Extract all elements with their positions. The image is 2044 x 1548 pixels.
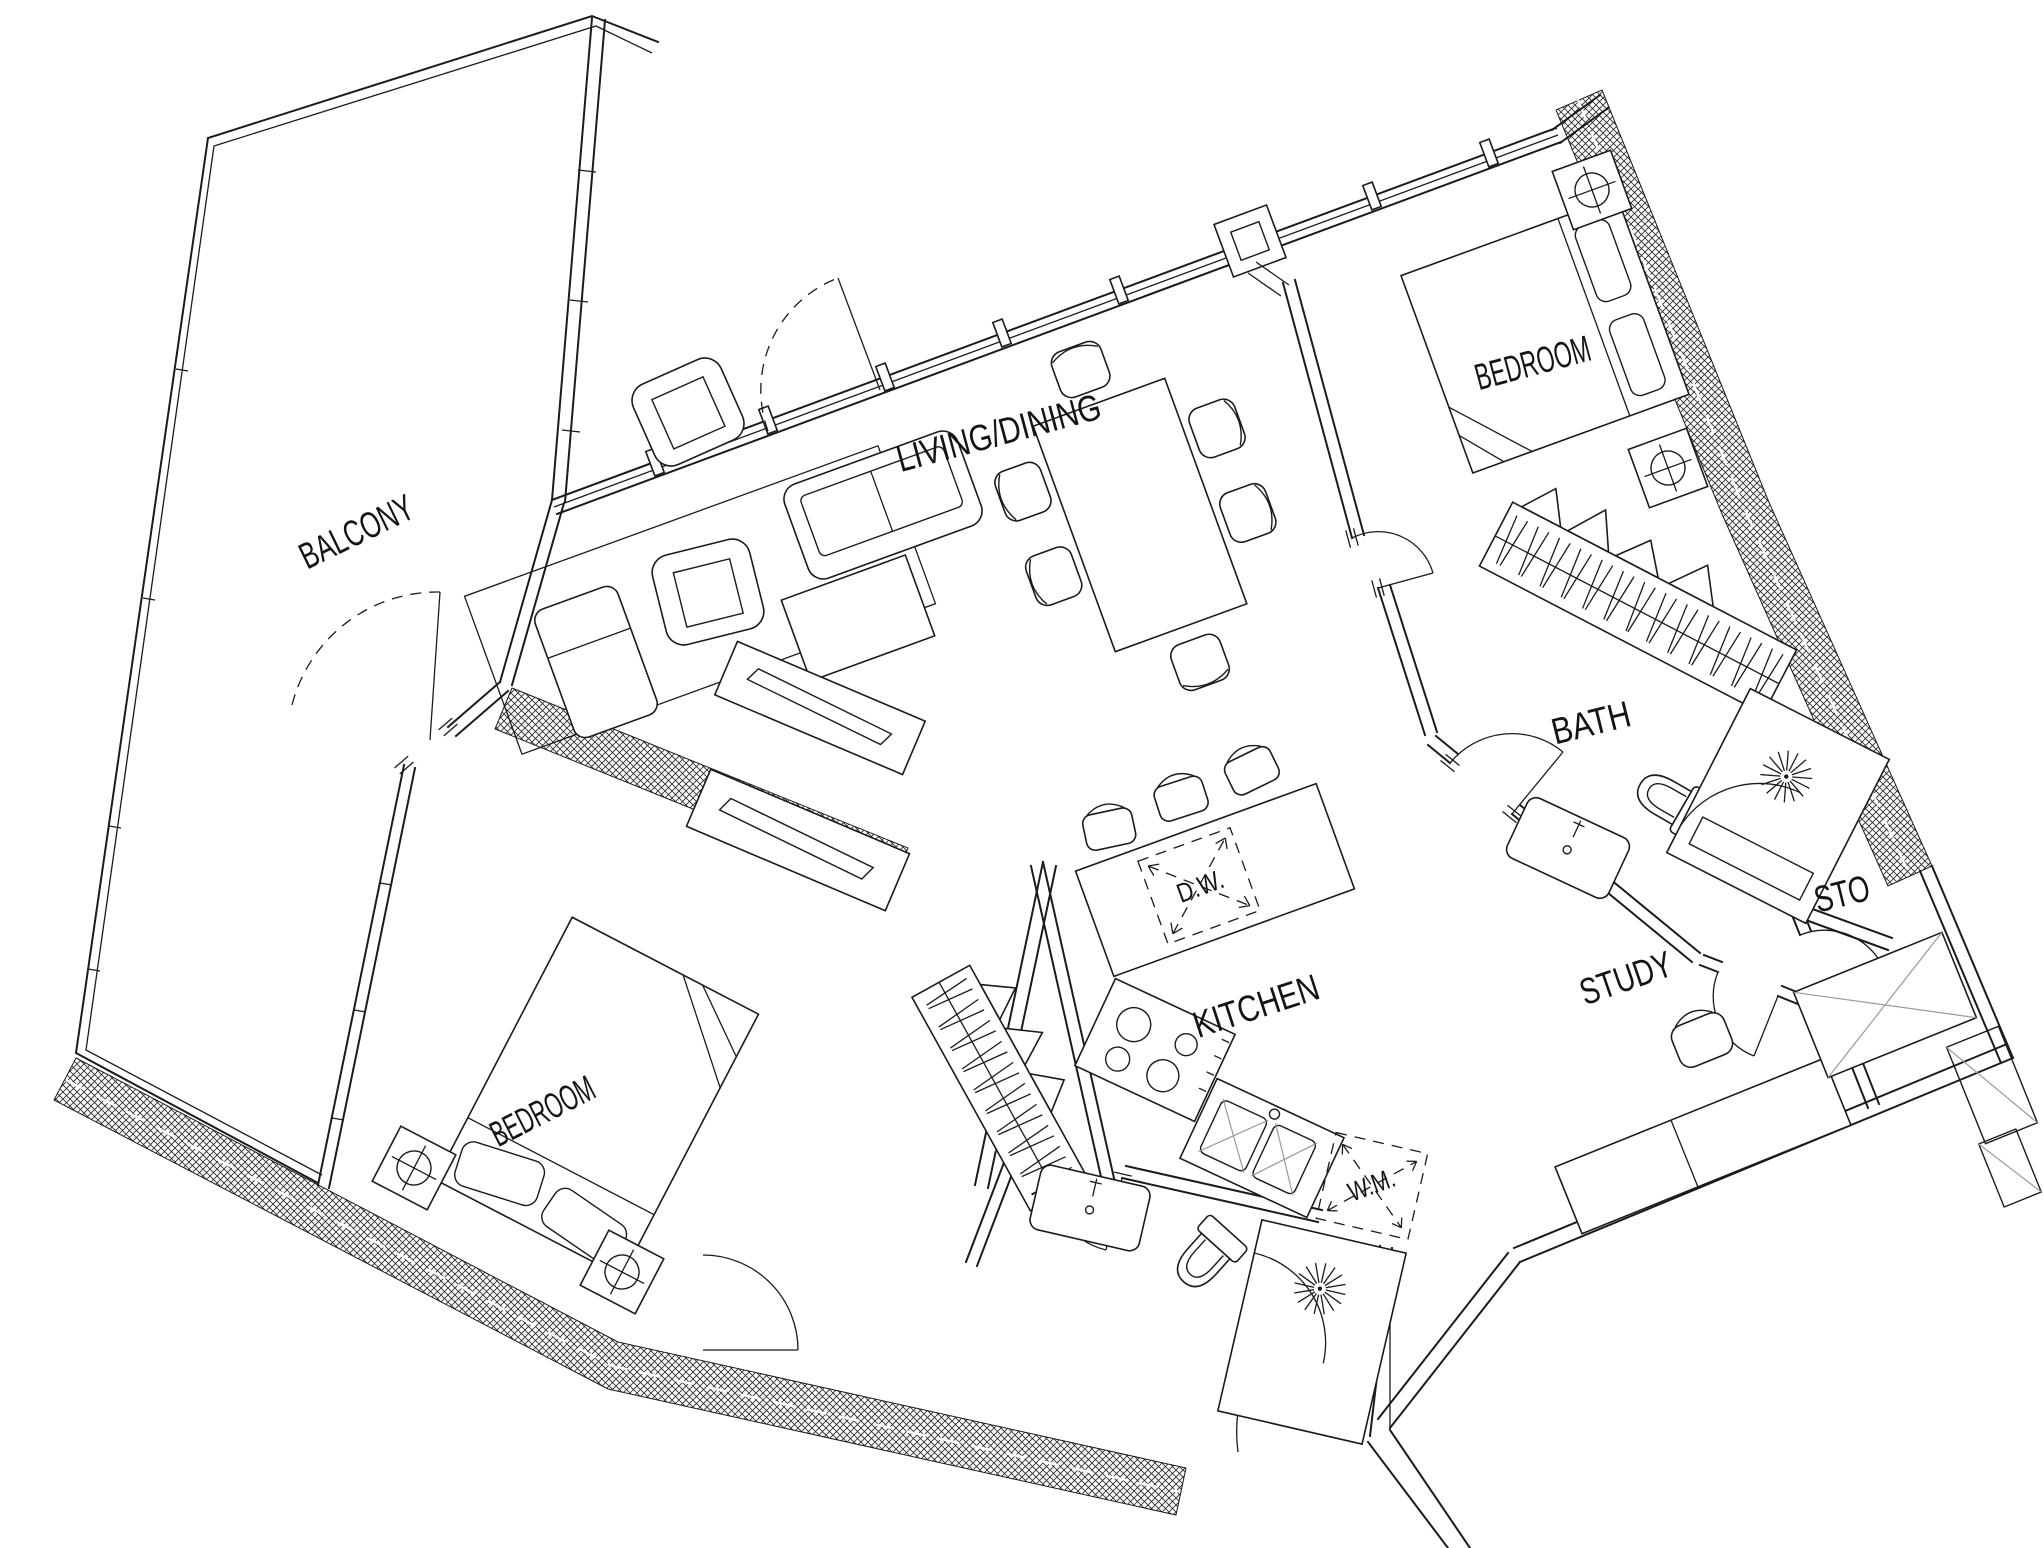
armchair xyxy=(648,535,767,648)
room-label-kitchen: KITCHEN xyxy=(1188,967,1324,1046)
dining-chair xyxy=(1022,544,1085,609)
bar-stool xyxy=(1080,799,1138,851)
floor-plan-canvas: D.W. W.M. BALCONY LIVING/DINING BEDROOM … xyxy=(0,0,2044,1548)
washing-machine-box: W.M. xyxy=(1316,1133,1427,1240)
nightstand-lamp xyxy=(372,1126,456,1210)
bar-stool xyxy=(1218,737,1282,798)
dining-chair xyxy=(1167,631,1232,694)
bath2-vanity xyxy=(1028,1163,1152,1253)
hall-closet-hangers xyxy=(912,950,1115,1210)
dining-chair xyxy=(1216,480,1279,545)
bar-stool xyxy=(1150,767,1211,823)
room-label-study: STUDY xyxy=(1574,943,1677,1013)
washing-machine-label: W.M. xyxy=(1344,1163,1399,1208)
west-wall xyxy=(552,18,605,502)
tv-console xyxy=(686,769,909,910)
shower xyxy=(1218,1220,1406,1444)
room-label-bath: BATH xyxy=(1547,693,1635,752)
coffee-table xyxy=(781,555,934,681)
room-label-balcony: BALCONY xyxy=(293,487,421,577)
toilet xyxy=(1164,1214,1248,1299)
dining-set xyxy=(960,302,1321,730)
storage-closet xyxy=(1794,932,1977,1077)
armchair xyxy=(626,352,749,471)
service-shaft xyxy=(1979,1129,2042,1207)
kitchen-island: D.W. xyxy=(1055,726,1355,977)
dining-chair xyxy=(992,459,1055,524)
study-desk xyxy=(1555,1058,1851,1233)
bath-vanity xyxy=(1503,794,1632,901)
dining-chair xyxy=(1186,396,1249,461)
study-chair xyxy=(1665,1002,1736,1071)
floor-plan-page: D.W. W.M. BALCONY LIVING/DINING BEDROOM … xyxy=(0,0,2044,1548)
